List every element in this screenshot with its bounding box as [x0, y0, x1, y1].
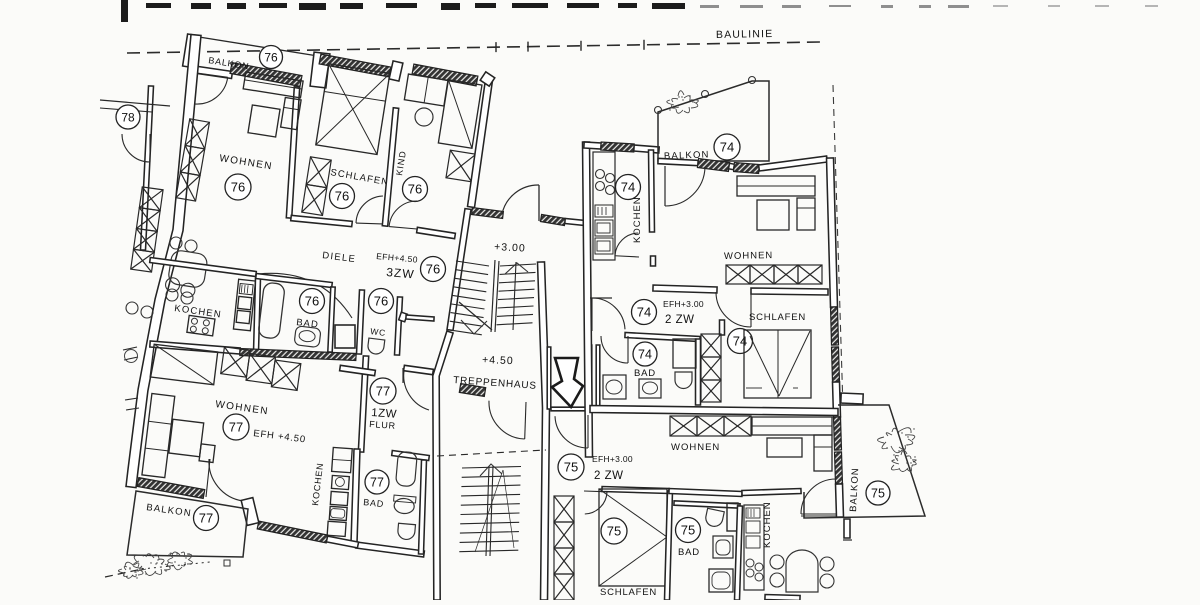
- svg-text:78: 78: [121, 110, 135, 124]
- svg-text:KOCHEN: KOCHEN: [762, 501, 773, 548]
- svg-text:76: 76: [374, 294, 388, 309]
- svg-text:77: 77: [199, 511, 213, 526]
- svg-text:WOHNEN: WOHNEN: [724, 250, 773, 262]
- svg-text:WOHNEN: WOHNEN: [671, 442, 720, 453]
- svg-text:75: 75: [681, 523, 695, 538]
- svg-text:FLUR: FLUR: [369, 419, 396, 431]
- svg-text:74: 74: [720, 140, 734, 155]
- svg-text:BAD: BAD: [678, 547, 700, 558]
- svg-text:BAULINIE: BAULINIE: [716, 28, 774, 41]
- svg-text:3ZW: 3ZW: [386, 265, 415, 281]
- svg-text:SCHLAFEN: SCHLAFEN: [749, 312, 806, 323]
- svg-text:76: 76: [335, 189, 349, 204]
- svg-text:2 ZW: 2 ZW: [665, 314, 694, 326]
- svg-text:KOCHEN: KOCHEN: [632, 196, 643, 243]
- svg-text:+3.00: +3.00: [494, 241, 526, 255]
- svg-text:+4.50: +4.50: [482, 354, 514, 367]
- svg-text:2 ZW: 2 ZW: [594, 470, 623, 482]
- svg-text:SCHLAFEN: SCHLAFEN: [600, 587, 657, 598]
- svg-text:74: 74: [637, 305, 651, 320]
- svg-text:75: 75: [607, 524, 621, 539]
- svg-text:75: 75: [871, 487, 885, 501]
- svg-text:74: 74: [733, 334, 747, 349]
- svg-text:76: 76: [231, 180, 245, 195]
- svg-text:BALKON: BALKON: [848, 467, 861, 512]
- svg-text:77: 77: [370, 476, 384, 490]
- svg-text:74: 74: [638, 348, 652, 362]
- svg-text:74: 74: [621, 180, 635, 195]
- svg-text:76: 76: [305, 294, 319, 309]
- svg-text:EFH+3.00: EFH+3.00: [663, 299, 704, 309]
- svg-text:BAD: BAD: [634, 368, 656, 379]
- svg-text:EFH+3.00: EFH+3.00: [592, 454, 633, 464]
- svg-text:77: 77: [376, 384, 390, 399]
- svg-text:76: 76: [264, 50, 278, 64]
- svg-text:WC: WC: [370, 326, 387, 338]
- svg-text:76: 76: [426, 262, 440, 277]
- svg-text:77: 77: [229, 420, 243, 435]
- svg-text:75: 75: [564, 460, 578, 475]
- svg-text:76: 76: [408, 182, 422, 197]
